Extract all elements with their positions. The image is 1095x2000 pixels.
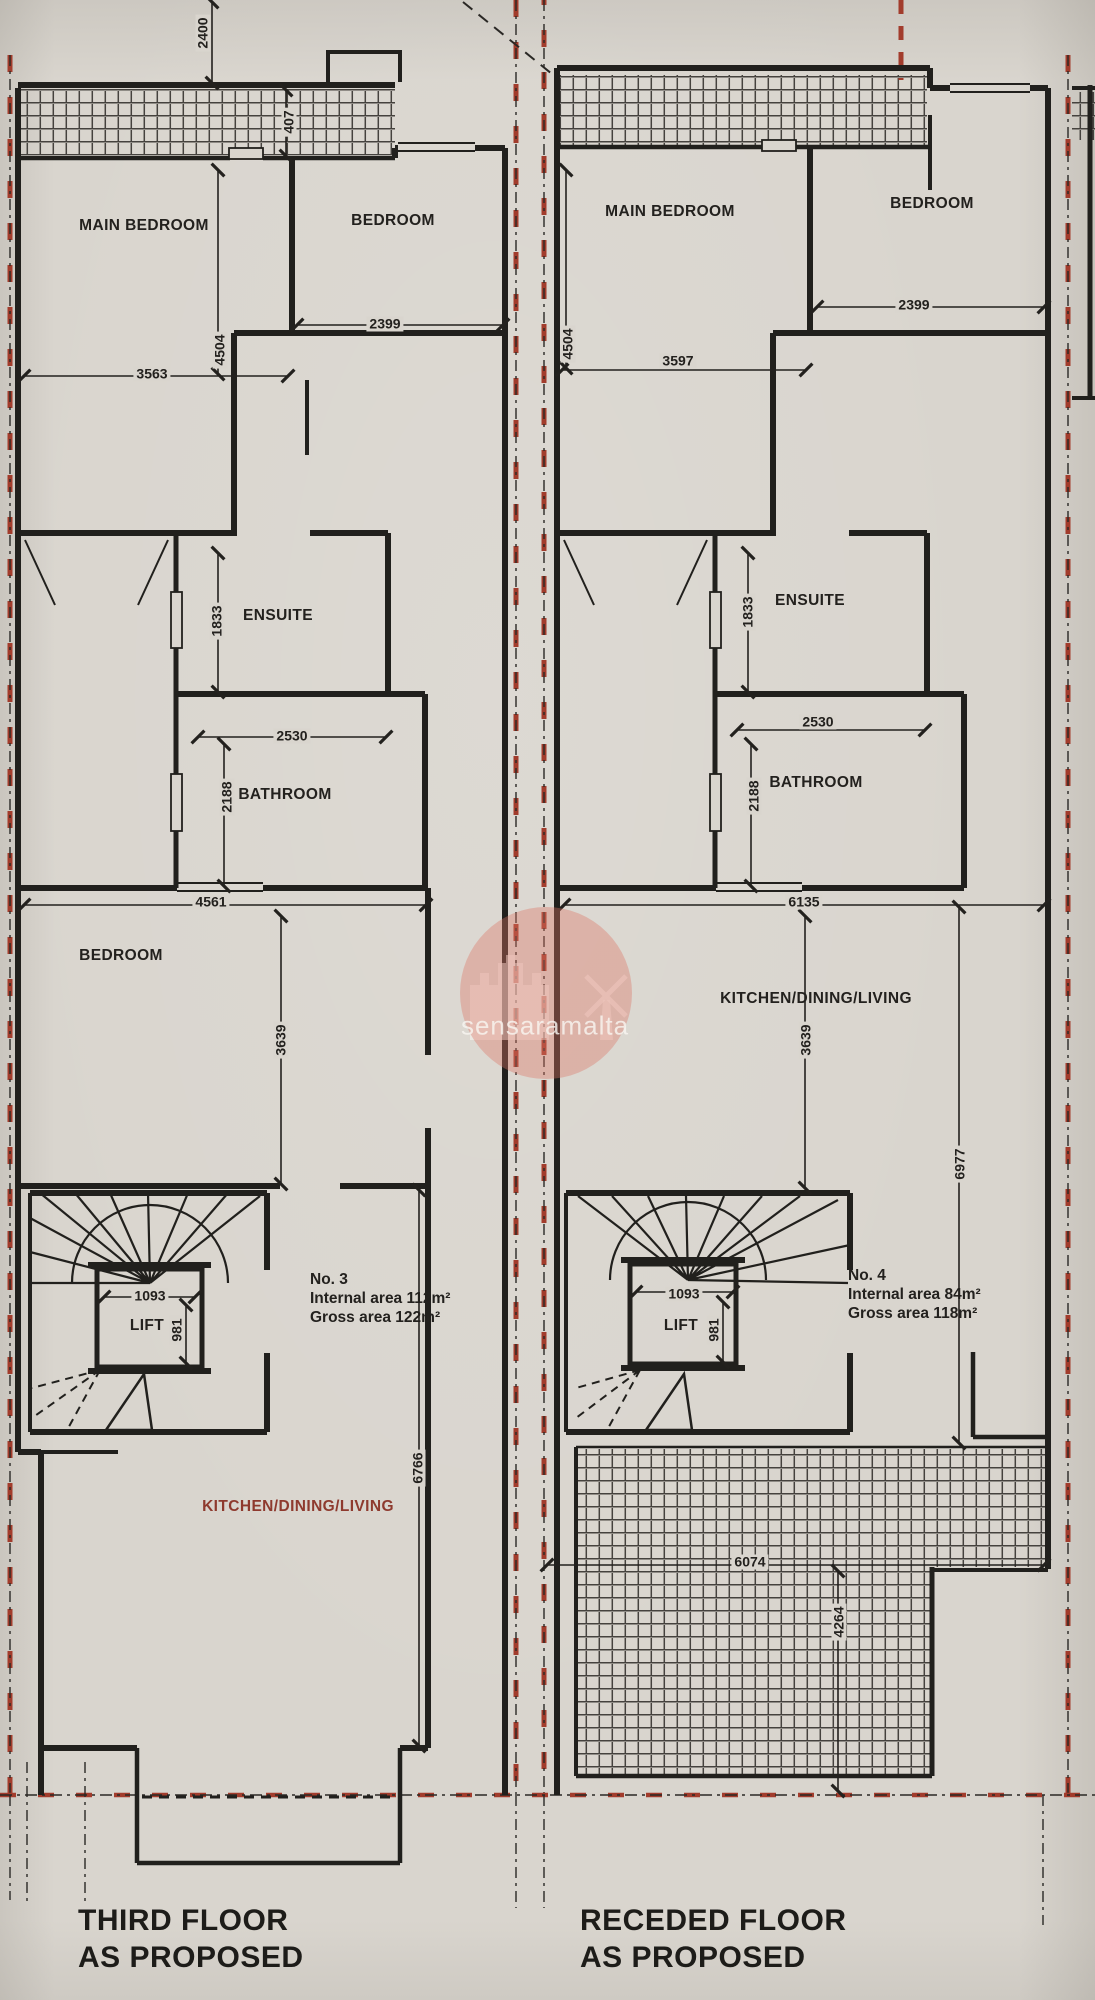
watermark-windmill-icon <box>586 976 626 1040</box>
watermark-castle <box>470 955 549 1040</box>
left-stair <box>30 1193 260 1432</box>
left-plan-walls <box>18 52 505 1863</box>
door-symbols <box>25 140 802 891</box>
right-balcony-hatch <box>560 75 927 145</box>
right-lift-shaft <box>630 1264 736 1364</box>
terrace-hatch-upper <box>576 1449 1046 1567</box>
floorplan-drawing: 2400 407 MAIN BEDROOM BEDROOM 2399 4504 … <box>0 0 1095 2000</box>
left-balcony-hatch <box>18 89 395 155</box>
plan-linework <box>0 0 1095 2000</box>
right-stair <box>576 1196 850 1432</box>
terrace-hatch-lower <box>576 1567 932 1775</box>
watermark-logo <box>470 955 626 1040</box>
